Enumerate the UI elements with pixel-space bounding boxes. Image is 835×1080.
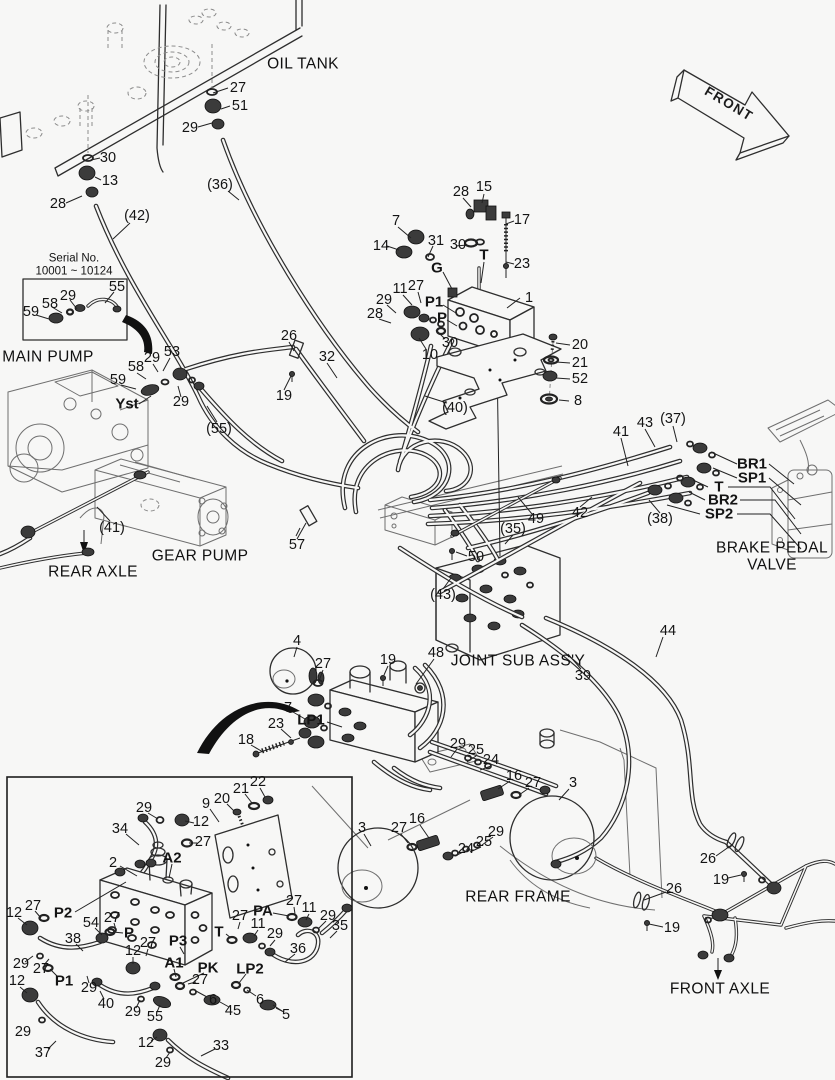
callout-label: 28 (453, 185, 469, 200)
port-label: P2 (54, 906, 72, 921)
callout-label: 16 (506, 769, 522, 784)
callout-label: 17 (514, 213, 530, 228)
port-label: P1 (55, 974, 73, 989)
callout-label: 27 (232, 909, 248, 924)
component-label: MAIN PUMP (2, 349, 93, 365)
callout-label: 6 (209, 993, 217, 1008)
callout-label: 10 (422, 348, 438, 363)
callout-label: 18 (238, 733, 254, 748)
callout-label: 29 (182, 121, 198, 136)
callout-label: 26 (281, 329, 297, 344)
callout-label: 30 (100, 151, 116, 166)
callout-label: 19 (664, 921, 680, 936)
callout-label: 29 (488, 825, 504, 840)
callout-label: 11 (392, 282, 407, 297)
callout-label: 29 (81, 981, 97, 996)
component-label: FRONT AXLE (670, 981, 770, 997)
component-label: REAR FRAME (465, 889, 571, 905)
callout-label: 27 (140, 936, 156, 951)
callout-label: 20 (214, 792, 230, 807)
callout-label: 4 (293, 634, 301, 649)
callout-label: 27 (195, 835, 211, 850)
callout-label: 59 (23, 305, 39, 320)
callout-label: 27 (408, 279, 424, 294)
callout-label: 31 (428, 234, 444, 249)
callout-label: FRONT (702, 84, 755, 123)
port-label: P1 (425, 295, 443, 310)
callout-label: 29 (136, 801, 152, 816)
callout-label: (35) (500, 522, 526, 537)
port-label: P3 (169, 934, 187, 949)
component-label: OIL TANK (267, 56, 339, 72)
callout-label: (42) (124, 209, 150, 224)
callout-label: 19 (713, 873, 729, 888)
callout-label: 19 (380, 653, 396, 668)
port-label: Yst (115, 397, 138, 412)
callout-label: 57 (289, 538, 305, 553)
callout-label: 22 (250, 775, 266, 790)
callout-label: (55) (206, 422, 232, 437)
callout-label: 44 (660, 624, 676, 639)
callout-label: 37 (35, 1046, 51, 1061)
callout-layer: OIL TANKMAIN PUMPGEAR PUMPREAR AXLEBRAKE… (0, 0, 835, 1080)
callout-label: 12 (6, 906, 22, 921)
callout-label: 36 (290, 942, 306, 957)
callout-label: 7 (392, 214, 400, 229)
callout-label: 28 (50, 197, 66, 212)
callout-label: 7 (284, 701, 292, 716)
callout-label: 29 (450, 737, 466, 752)
callout-label: 51 (232, 99, 248, 114)
callout-label: 38 (65, 932, 81, 947)
callout-label: 24 (483, 753, 499, 768)
callout-label: 25 (468, 743, 484, 758)
callout-label: (37) (660, 412, 686, 427)
callout-label: 2 (109, 856, 117, 871)
component-label: GEAR PUMP (152, 548, 249, 564)
port-label: T (479, 248, 488, 263)
callout-label: 32 (319, 350, 335, 365)
port-label: SP2 (705, 507, 733, 522)
callout-label: 55 (147, 1010, 163, 1025)
callout-label: 10001 ~ 10124 (35, 266, 112, 278)
callout-label: 29 (125, 1005, 141, 1020)
callout-label: 40 (98, 997, 114, 1012)
callout-label: 9 (202, 797, 210, 812)
callout-label: (38) (647, 512, 673, 527)
callout-label: 50 (468, 550, 484, 565)
callout-label: 45 (225, 1004, 241, 1019)
port-label: A2 (162, 851, 181, 866)
callout-label: 28 (367, 307, 383, 322)
callout-label: 39 (575, 669, 591, 684)
port-label: PK (198, 961, 219, 976)
callout-label: 27 (286, 894, 302, 909)
port-label: SP1 (738, 471, 766, 486)
callout-label: Serial No. (49, 253, 100, 265)
callout-label: 11 (301, 901, 316, 916)
callout-label: 29 (155, 1056, 171, 1071)
callout-label: 59 (110, 373, 126, 388)
callout-label: 21 (233, 782, 249, 797)
callout-label: 34 (112, 822, 128, 837)
callout-label: (43) (430, 588, 456, 603)
callout-label: 33 (213, 1039, 229, 1054)
callout-label: 23 (268, 717, 284, 732)
callout-label: 1 (525, 291, 533, 306)
callout-label: 29 (15, 1025, 31, 1040)
callout-label: 8 (574, 394, 582, 409)
callout-label: 30 (442, 336, 458, 351)
callout-label: 54 (83, 916, 99, 931)
component-label: JOINT SUB ASS'Y (451, 653, 585, 669)
callout-label: 29 (60, 289, 76, 304)
callout-label: 29 (144, 351, 160, 366)
callout-label: 15 (476, 180, 492, 195)
callout-label: 14 (373, 239, 389, 254)
callout-label: 48 (428, 646, 444, 661)
callout-label: 58 (128, 360, 144, 375)
callout-label: 12 (9, 974, 25, 989)
callout-label: 43 (637, 416, 653, 431)
callout-label: 20 (572, 338, 588, 353)
callout-label: 23 (514, 257, 530, 272)
callout-label: 27 (391, 821, 407, 836)
callout-label: 24 (458, 842, 474, 857)
callout-label: 26 (666, 882, 682, 897)
parts-diagram-page: OIL TANKMAIN PUMPGEAR PUMPREAR AXLEBRAKE… (0, 0, 835, 1080)
component-label: VALVE (747, 557, 797, 573)
callout-label: 27 (104, 911, 120, 926)
callout-label: 3 (569, 776, 577, 791)
callout-label: (40) (442, 401, 468, 416)
callout-label: 29 (173, 395, 189, 410)
callout-label: 27 (230, 81, 246, 96)
callout-label: 19 (276, 389, 292, 404)
callout-label: 27 (525, 776, 541, 791)
callout-label: 29 (13, 957, 29, 972)
component-label: BRAKE PEDAL (716, 540, 828, 556)
callout-label: 35 (332, 919, 348, 934)
port-label: G (431, 261, 443, 276)
callout-label: 12 (125, 944, 141, 959)
callout-label: 27 (33, 962, 49, 977)
port-label: T (214, 925, 223, 940)
callout-label: 26 (700, 852, 716, 867)
callout-label: 27 (25, 899, 41, 914)
callout-label: 5 (282, 1008, 290, 1023)
callout-label: (41) (99, 521, 125, 536)
callout-label: 55 (109, 280, 125, 295)
callout-label: 42 (572, 506, 588, 521)
callout-label: 3 (358, 821, 366, 836)
port-label: P (437, 311, 447, 326)
callout-label: 49 (528, 512, 544, 527)
callout-label: 41 (613, 425, 629, 440)
port-label: LP1 (297, 713, 325, 728)
port-label: A1 (164, 956, 183, 971)
callout-label: 11 (250, 917, 265, 932)
component-label: REAR AXLE (48, 564, 138, 580)
callout-label: 58 (42, 297, 58, 312)
callout-label: 21 (572, 356, 588, 371)
callout-label: 12 (193, 815, 209, 830)
callout-label: 30 (450, 238, 466, 253)
callout-label: (36) (207, 178, 233, 193)
callout-label: 6 (256, 993, 264, 1008)
callout-label: 52 (572, 372, 588, 387)
callout-label: 13 (102, 174, 118, 189)
callout-label: 53 (164, 345, 180, 360)
callout-label: 29 (267, 927, 283, 942)
port-label: P (124, 926, 134, 941)
callout-label: 16 (409, 812, 425, 827)
callout-label: 27 (315, 657, 331, 672)
callout-label: 12 (138, 1036, 154, 1051)
port-label: LP2 (236, 962, 264, 977)
